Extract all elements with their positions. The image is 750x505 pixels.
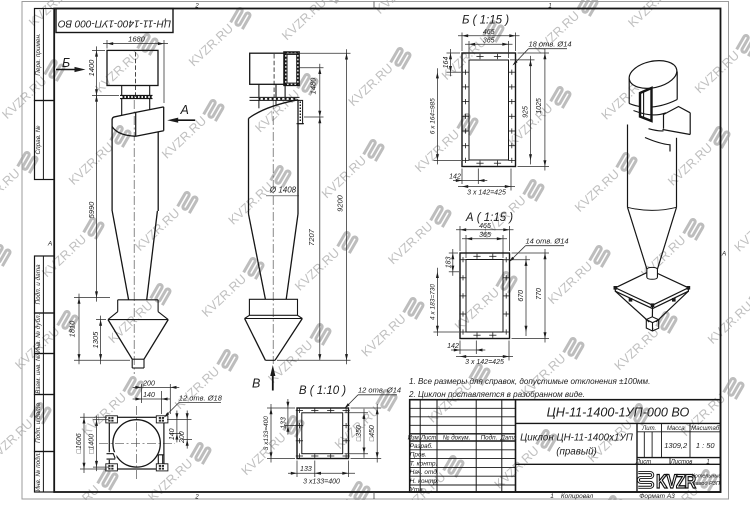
svg-text:ЦН-11-1400-1УП-000 ВО: ЦН-11-1400-1УП-000 ВО	[58, 18, 172, 29]
svg-text:1: 1	[550, 493, 554, 500]
svg-text:365: 365	[483, 38, 495, 45]
svg-text:□450: □450	[369, 425, 376, 441]
svg-text:Инв. № подл.: Инв. № подл.	[34, 452, 42, 492]
svg-text:Изм.: Изм.	[408, 436, 421, 442]
svg-text:Дата: Дата	[500, 436, 517, 442]
svg-text:18 отв. Ø14: 18 отв. Ø14	[529, 40, 572, 49]
svg-text:Масштаб: Масштаб	[691, 426, 720, 432]
svg-text:2: 2	[194, 494, 199, 500]
svg-text:133: 133	[280, 417, 287, 429]
svg-text:Инв. № дубл.: Инв. № дубл.	[34, 314, 42, 353]
svg-text:Утв.: Утв.	[409, 487, 425, 494]
svg-text:Листов: Листов	[670, 459, 693, 465]
svg-text:1480: 1480	[308, 77, 317, 95]
svg-text:1. Все размеры для справок, до: 1. Все размеры для справок, допустимые о…	[409, 377, 650, 386]
svg-text:1: 1	[706, 459, 709, 465]
svg-text:1 : 50: 1 : 50	[696, 441, 716, 450]
svg-text:3 x 142=425: 3 x 142=425	[465, 359, 504, 366]
svg-text:□350: □350	[356, 425, 363, 441]
svg-text:1680: 1680	[128, 35, 146, 44]
svg-text:12 отв. Ø18: 12 отв. Ø18	[179, 393, 223, 402]
svg-text:3 x 142=425: 3 x 142=425	[467, 189, 506, 196]
svg-text:Справ. №: Справ. №	[35, 125, 42, 154]
svg-text:465: 465	[483, 29, 495, 36]
svg-text:3 x133=400: 3 x133=400	[303, 478, 340, 485]
svg-text:№ докум.: № докум.	[443, 434, 471, 442]
svg-text:Н. контр.: Н. контр.	[410, 478, 439, 485]
svg-text:ЦН-11-1400-1УП-000 ВО: ЦН-11-1400-1УП-000 ВО	[547, 406, 690, 420]
svg-text:Нач. отд.: Нач. отд.	[410, 468, 439, 476]
svg-text:1305: 1305	[91, 331, 100, 349]
svg-text:Копировал: Копировал	[561, 493, 594, 500]
svg-text:завод РЗП: завод РЗП	[692, 481, 720, 487]
svg-text:7207: 7207	[307, 228, 316, 246]
svg-text:140: 140	[143, 392, 155, 399]
svg-text:А: А	[180, 103, 189, 117]
svg-text:3 x133=400: 3 x133=400	[263, 416, 270, 451]
svg-text:770: 770	[536, 288, 543, 300]
svg-text:Формат А3: Формат А3	[639, 493, 675, 500]
svg-text:Б ( 1:15 ): Б ( 1:15 )	[462, 15, 509, 27]
svg-text:5990: 5990	[87, 201, 96, 219]
svg-text:2. Циклон поставляется в разоб: 2. Циклон поставляется в разобранном вид…	[408, 390, 585, 399]
svg-text:KVZR: KVZR	[656, 470, 696, 492]
svg-text:□1400: □1400	[89, 434, 96, 454]
svg-text:1400: 1400	[87, 59, 96, 77]
svg-text:365: 365	[479, 232, 491, 239]
svg-text:Подп.: Подп.	[481, 434, 498, 442]
svg-text:9200: 9200	[335, 194, 344, 212]
svg-text:164: 164	[443, 57, 450, 69]
svg-text:200: 200	[179, 431, 186, 444]
svg-text:(правый): (правый)	[556, 447, 597, 458]
svg-text:А: А	[47, 241, 52, 248]
svg-text:А: А	[721, 251, 726, 258]
svg-text:465: 465	[479, 223, 491, 230]
svg-text:Лист: Лист	[635, 459, 651, 465]
svg-text:Подп. и дата: Подп. и дата	[34, 264, 42, 304]
svg-text:1309,2: 1309,2	[664, 441, 688, 450]
svg-text:12 отв. Ø14: 12 отв. Ø14	[358, 386, 401, 395]
svg-text:Котельный: Котельный	[692, 473, 722, 480]
svg-text:В ( 1:10 ): В ( 1:10 )	[299, 385, 346, 397]
svg-text:В: В	[252, 377, 260, 391]
svg-text:2: 2	[194, 3, 199, 9]
svg-text:142: 142	[447, 343, 459, 350]
svg-text:Перв. примен.: Перв. примен.	[35, 33, 42, 75]
svg-text:Взам. инв. №: Взам. инв. №	[35, 354, 42, 394]
svg-text:133: 133	[300, 466, 312, 473]
svg-text:14 отв. Ø14: 14 отв. Ø14	[526, 237, 569, 246]
svg-text:4 x 183=730: 4 x 183=730	[430, 284, 437, 320]
svg-text:1025: 1025	[536, 98, 543, 114]
svg-text:1: 1	[548, 3, 551, 9]
svg-text:Подп. и дата: Подп. и дата	[34, 403, 42, 443]
svg-text:142: 142	[449, 173, 461, 180]
svg-text:Разраб.: Разраб.	[410, 442, 433, 450]
svg-text:183: 183	[445, 256, 452, 268]
svg-text:Пров.: Пров.	[410, 452, 427, 459]
svg-text:Т. контр.: Т. контр.	[410, 460, 438, 467]
svg-text:Б: Б	[62, 56, 70, 70]
svg-text:1810: 1810	[68, 320, 77, 338]
svg-text:140: 140	[169, 428, 176, 440]
svg-text:925: 925	[522, 106, 529, 118]
svg-text:670: 670	[518, 290, 525, 302]
svg-text:200: 200	[142, 380, 155, 387]
svg-text:□1606: □1606	[76, 433, 83, 453]
svg-text:Циклон ЦН-11-1400х1УП: Циклон ЦН-11-1400х1УП	[520, 433, 634, 444]
svg-text:Лит.: Лит.	[641, 426, 656, 432]
svg-text:Масса: Масса	[667, 426, 685, 432]
svg-text:Лист: Лист	[420, 436, 436, 442]
svg-text:Ø 1408: Ø 1408	[269, 186, 297, 195]
svg-text:6 x 164=985: 6 x 164=985	[430, 98, 437, 134]
